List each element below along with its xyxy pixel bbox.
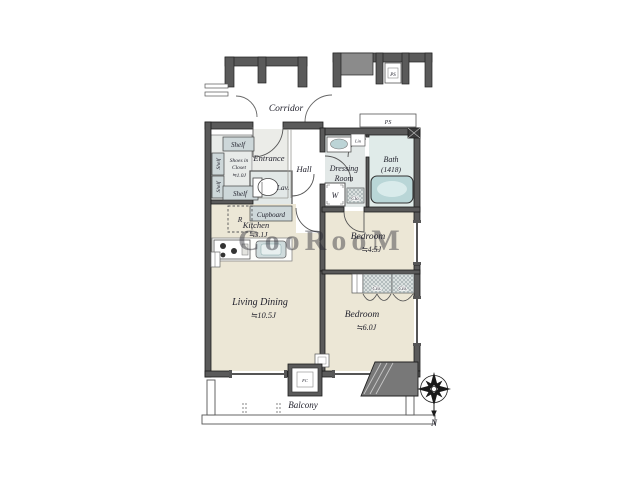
duct-label: FC [301,378,309,383]
living-size: ≒10.5J [250,310,277,320]
lav-label: Lav. [276,183,290,192]
balcony-duct-box: FC [288,364,322,396]
closet-label: Clo. [398,286,407,292]
entrance-label: Entrance [252,153,284,163]
floor-plan: PS [0,0,640,480]
meter-box-label: PS [389,73,396,78]
small-closet-box: Clo. [347,188,364,203]
pipe-space-box: PS [360,114,416,127]
hall-label: Hall [295,164,312,174]
corridor-meter-box: PS [385,63,401,83]
dressing-label2: Room [334,174,354,183]
pipe-space-label: PS [384,120,392,126]
corridor-label: Corridor [269,104,304,114]
linen-label: Lin [354,139,362,144]
bath-label: Bath [383,155,398,164]
shelf-label: Shelf [231,141,246,149]
floor-plan-page: PS [0,0,640,480]
shoes-closet-size: ≒1.0J [232,173,246,179]
shoes-closet-label: Shoes in [230,158,249,164]
balcony-label: Balcony [288,400,318,410]
closet-label: Clo. [351,197,359,202]
dressing-label: Dressing [329,164,359,173]
drain-lines [243,403,280,415]
bedroom1-size: ≒4.5J [361,245,382,254]
washbasin-icon [327,137,351,152]
bedroom2-label: Bedroom [345,310,380,320]
kitchen-size: ≒3.1J [249,230,269,239]
north-label: N [430,418,438,428]
kitchen-label: Kitchen [242,220,269,230]
shelf-label: Shelf [215,157,222,169]
shelf-label: Shelf [215,180,222,192]
cupboard-label: Cupboard [257,211,286,219]
bathtub-icon [371,176,413,203]
left-wall-box [211,252,220,267]
shoes-closet-label: Closet [232,165,247,171]
shelf-label: Shelf [233,190,248,198]
living-label: Living Dining [231,297,288,308]
bedroom1-label: Bedroom [351,232,386,242]
bath-size: (1418) [381,165,401,174]
linen-box: Lin [351,134,365,146]
bedroom2-size: ≒6.0J [356,323,377,332]
closet-label: Clo. [372,286,381,292]
